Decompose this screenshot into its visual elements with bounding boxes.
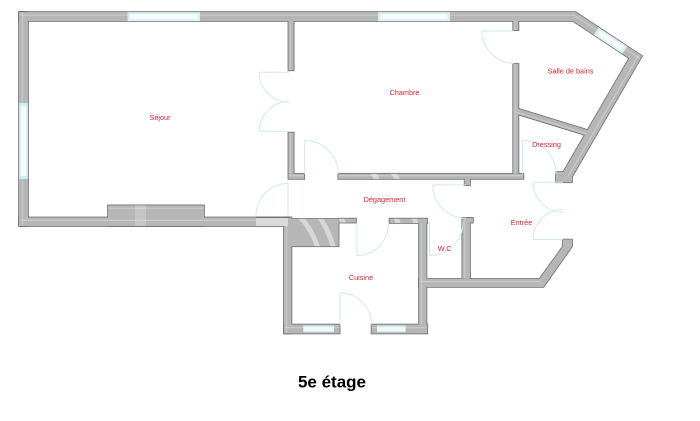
svg-text:Dressing: Dressing — [532, 140, 561, 149]
svg-text:5e étage: 5e étage — [298, 373, 366, 392]
svg-text:Dégagement: Dégagement — [364, 195, 406, 204]
svg-text:Entrée: Entrée — [511, 218, 533, 227]
svg-text:Séjour: Séjour — [149, 113, 171, 122]
svg-text:W.C: W.C — [438, 244, 452, 253]
svg-text:Salle de bains: Salle de bains — [548, 67, 594, 76]
svg-text:Cuisine: Cuisine — [349, 273, 373, 282]
svg-text:Chambre: Chambre — [389, 88, 419, 97]
